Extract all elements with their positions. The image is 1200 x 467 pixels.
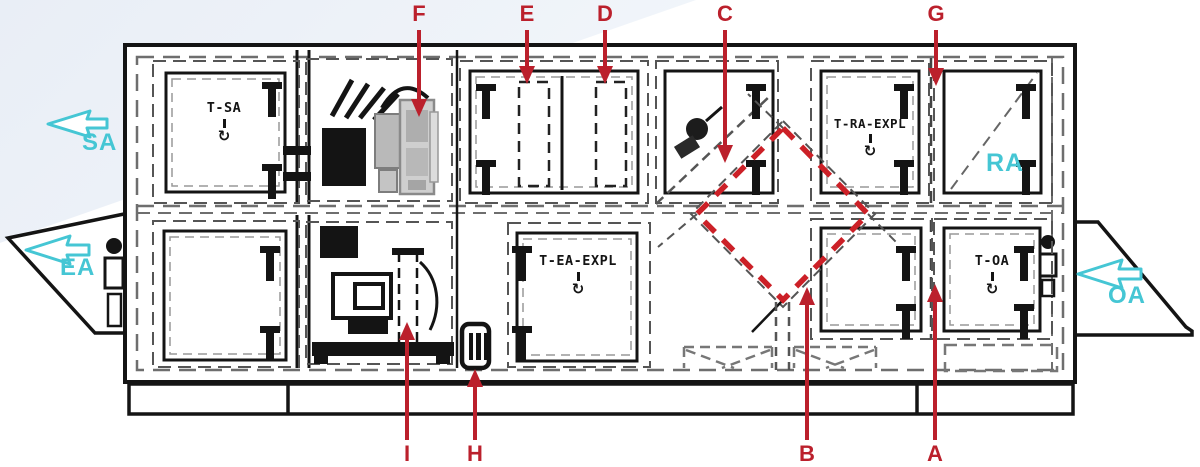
label-block-t-ra-expl: T-RA-EXPL ↻ [820,118,920,159]
callout-letter-h: H [467,443,483,465]
room-mixing-access [811,219,932,339]
hvac-ahu-plan-diagram: T-SA ↻ T-RA-EXPL ↻ T-EA-EXPL ↻ T-OA ↻ SA… [0,0,1200,467]
ra-flow-label: RA [986,151,1024,176]
linework-svg [0,0,1200,467]
t-oa-label: T-OA [975,255,1010,269]
room-ea-access [153,221,299,367]
callout-letter-c: C [717,3,733,25]
callout-letter-e: E [520,3,535,25]
callout-letter-a: A [927,443,943,465]
callout-letter-g: G [927,3,944,25]
sa-flow-label: SA [82,131,117,155]
label-block-t-ea-expl: T-EA-EXPL ↻ [517,255,639,297]
base-frame [129,384,1073,414]
label-block-t-sa: T-SA ↻ [164,102,284,144]
callout-letter-f: F [412,3,425,25]
damper-room-c [656,61,778,204]
label-block-t-oa: T-OA ↻ [944,255,1040,297]
fan-rotation-icon: ↻ [864,144,877,159]
fan-rotation-icon: ↻ [572,282,585,297]
t-ea-expl-label: T-EA-EXPL [539,255,617,269]
damper-actuator-icon [686,118,708,140]
callout-letter-d: D [597,3,613,25]
fan-rotation-icon: ↻ [986,282,999,297]
drain-trap-h [462,324,489,368]
filter-section [460,61,648,203]
oa-flow-label: OA [1108,284,1146,308]
t-ra-expl-label: T-RA-EXPL [834,118,906,131]
callout-letter-i: I [404,443,410,465]
room-ra-plenum [934,61,1052,203]
ea-flow-label: EA [60,256,95,280]
t-sa-label: T-SA [207,102,242,116]
fan-rotation-icon: ↻ [218,129,231,144]
oa-damper-actuator [1040,235,1056,296]
callout-letter-b: B [799,443,815,465]
